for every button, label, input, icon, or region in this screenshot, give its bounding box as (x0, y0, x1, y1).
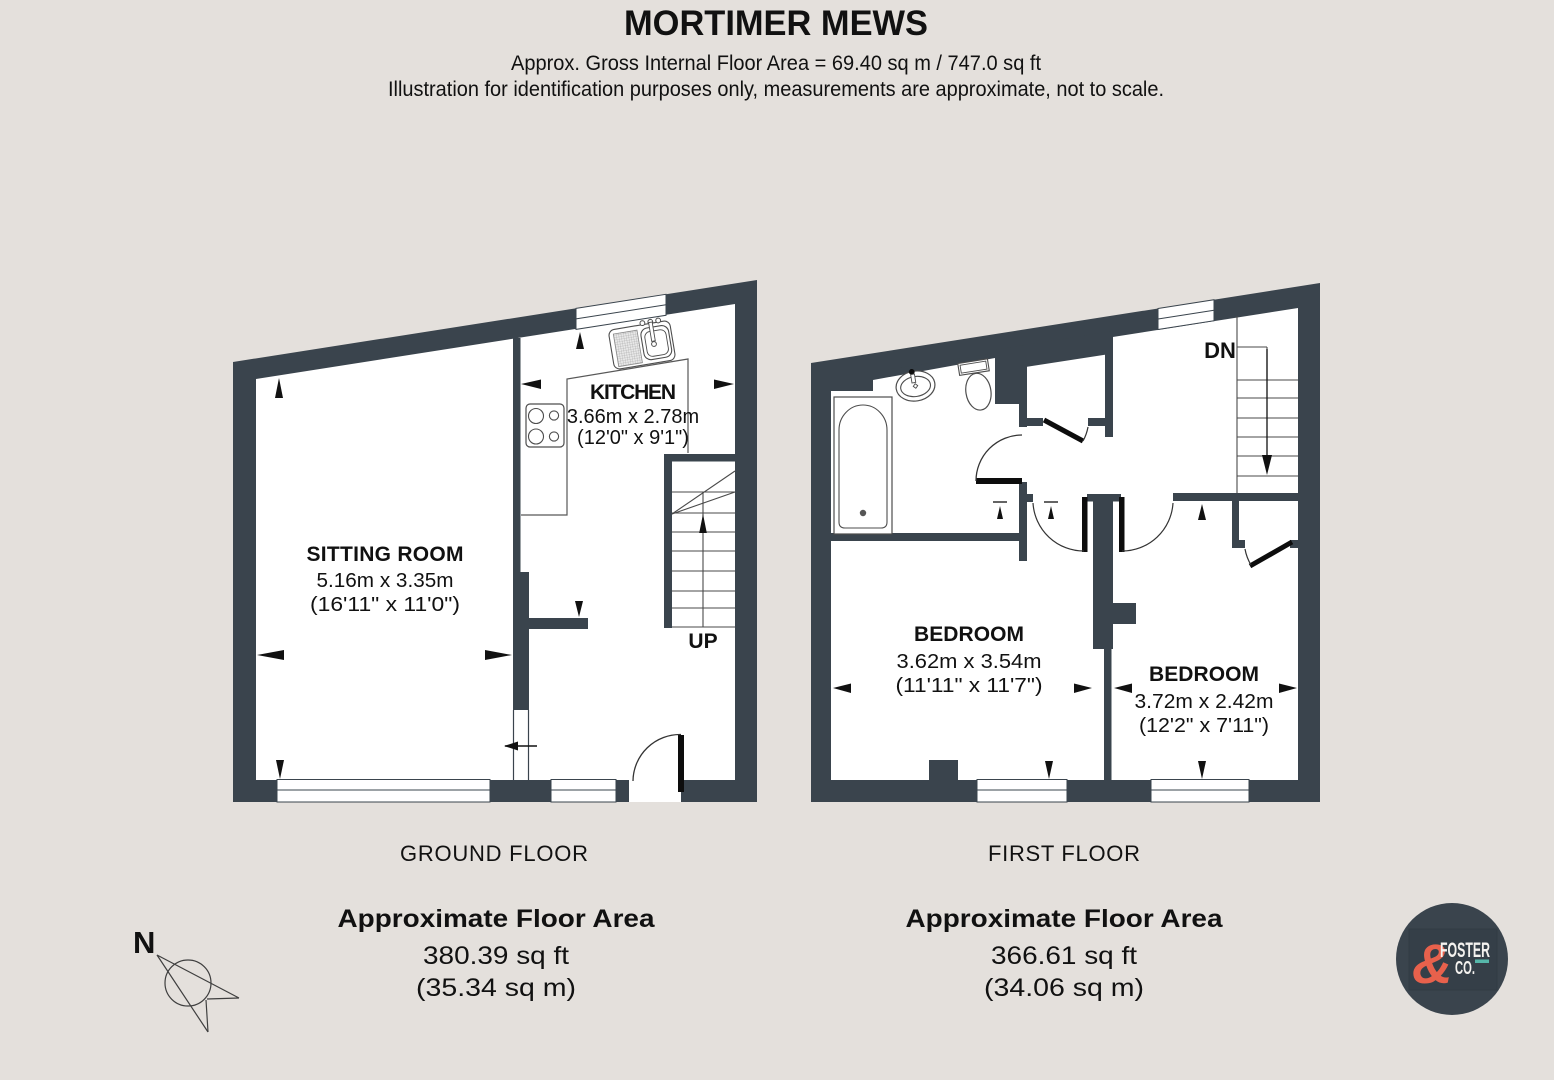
svg-text:MORTIMER MEWS: MORTIMER MEWS (624, 4, 928, 43)
svg-text:5.16m x 3.35m: 5.16m x 3.35m (317, 570, 454, 592)
svg-text:Approximate Floor Area: Approximate Floor Area (338, 905, 656, 933)
svg-text:3.62m x 3.54m: 3.62m x 3.54m (897, 651, 1042, 673)
svg-text:(34.06 sq m): (34.06 sq m) (984, 974, 1144, 1002)
svg-text:N: N (133, 925, 155, 960)
svg-text:(12'0" x 9'1"): (12'0" x 9'1") (577, 427, 689, 449)
svg-text:3.72m x 2.42m: 3.72m x 2.42m (1135, 691, 1274, 713)
svg-text:Approximate Floor Area: Approximate Floor Area (906, 905, 1224, 933)
svg-text:3.66m x 2.78m: 3.66m x 2.78m (567, 406, 699, 428)
svg-text:380.39 sq ft: 380.39 sq ft (423, 942, 569, 970)
svg-text:SITTING ROOM: SITTING ROOM (307, 543, 464, 566)
svg-text:DN: DN (1204, 338, 1236, 363)
svg-text:Illustration for identificatio: Illustration for identification purposes… (388, 78, 1164, 101)
svg-text:FIRST FLOOR: FIRST FLOOR (988, 841, 1140, 866)
svg-text:(11'11" x 11'7"): (11'11" x 11'7") (896, 675, 1043, 697)
svg-text:BEDROOM: BEDROOM (914, 623, 1024, 646)
svg-text:(16'11" x 11'0"): (16'11" x 11'0") (310, 594, 460, 616)
svg-text:BEDROOM: BEDROOM (1149, 663, 1259, 686)
svg-text:366.61 sq ft: 366.61 sq ft (991, 942, 1137, 970)
svg-text:KITCHEN: KITCHEN (590, 381, 676, 404)
svg-text:(12'2" x 7'11"): (12'2" x 7'11") (1139, 715, 1269, 737)
svg-text:Approx. Gross Internal Floor A: Approx. Gross Internal Floor Area = 69.4… (511, 52, 1041, 75)
svg-text:UP: UP (688, 630, 717, 653)
svg-text:(35.34 sq m): (35.34 sq m) (416, 974, 576, 1002)
svg-text:GROUND FLOOR: GROUND FLOOR (400, 841, 588, 866)
svg-text:CO.: CO. (1455, 958, 1475, 978)
